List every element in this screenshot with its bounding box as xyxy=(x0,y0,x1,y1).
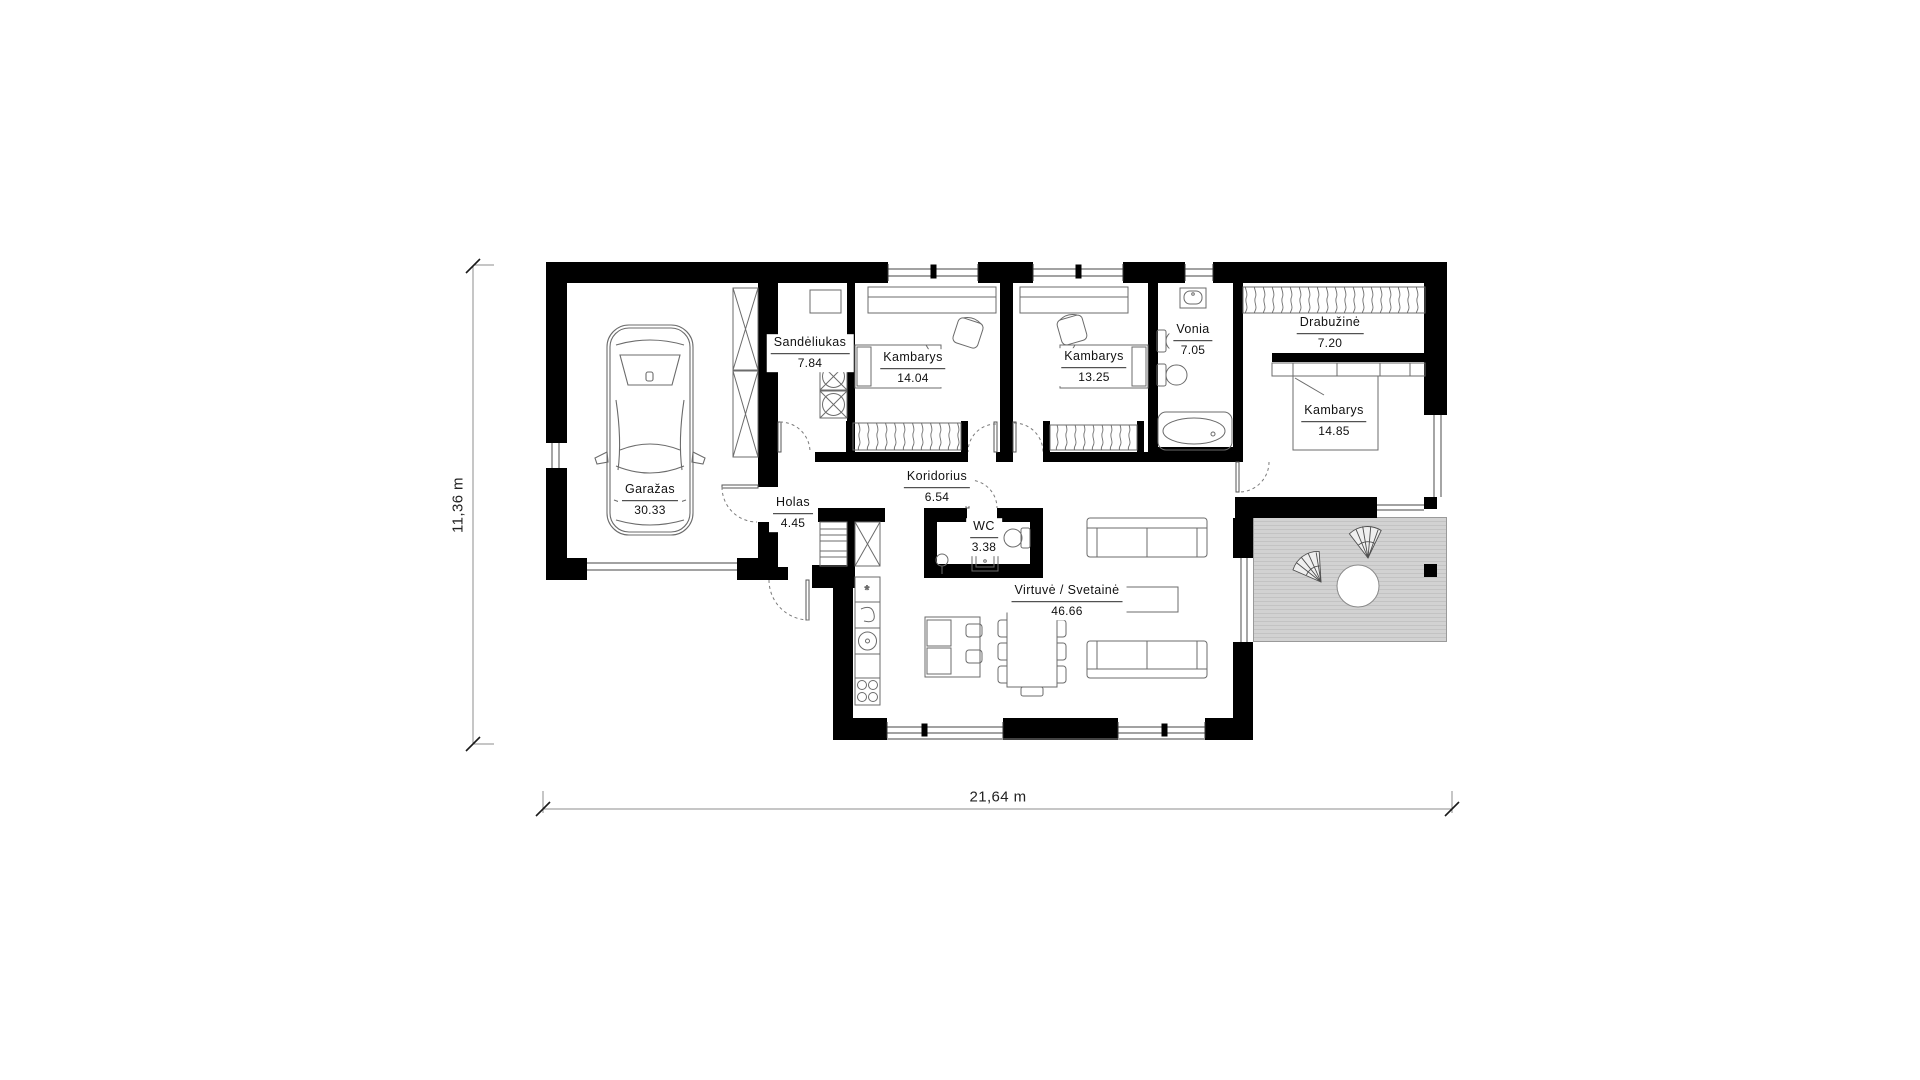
room-label-bedroom2: Kambarys 13.25 xyxy=(1057,348,1130,386)
room-name: Garažas xyxy=(622,482,678,501)
room-name: Kambarys xyxy=(1061,349,1126,368)
room-label-storage: Sandėliukas 7.84 xyxy=(767,334,854,372)
garage-wardrobes xyxy=(733,288,758,457)
room-area: 14.85 xyxy=(1301,422,1366,439)
room-area: 3.38 xyxy=(970,538,998,555)
room-name: Drabužinė xyxy=(1297,315,1364,334)
room-area: 46.66 xyxy=(1012,602,1123,619)
kitchen-sink xyxy=(859,632,877,650)
room-label-kitchen-living: Virtuvė / Svetainė 46.66 xyxy=(1008,582,1127,620)
room-name: Vonia xyxy=(1173,322,1212,341)
terrace-chair xyxy=(1290,547,1335,592)
room-name: Kambarys xyxy=(880,350,945,369)
room-label-garage: Garažas 30.33 xyxy=(618,481,682,519)
bidet-icon xyxy=(1157,364,1187,386)
room-name: Koridorius xyxy=(904,469,970,488)
appliance-mark xyxy=(861,607,874,621)
room-label-wardrobe: Drabužinė 7.20 xyxy=(1293,314,1368,352)
room-label-bedroom1: Kambarys 14.04 xyxy=(876,349,949,387)
room-area: 7.20 xyxy=(1297,334,1364,351)
floor-plan-drawing: * xyxy=(0,0,1920,1080)
bathroom-fixtures xyxy=(1157,288,1232,450)
dimension-width: 21,64 m xyxy=(966,789,1031,806)
room-area: 6.54 xyxy=(904,488,970,505)
room-area: 4.45 xyxy=(773,514,813,531)
room-name: Holas xyxy=(773,495,813,514)
room-label-bedroom3: Kambarys 14.85 xyxy=(1297,402,1370,440)
wc-toilet-icon xyxy=(1004,528,1030,548)
sofa-bottom xyxy=(1087,641,1207,678)
room-label-wc: WC 3.38 xyxy=(966,518,1002,556)
room-name: WC xyxy=(970,519,998,538)
sofa-top xyxy=(1087,518,1207,557)
kitchen-island xyxy=(925,617,982,677)
terrace-furniture xyxy=(1290,525,1384,607)
terrace-chair xyxy=(1349,525,1384,560)
room-name: Sandėliukas xyxy=(771,335,850,354)
room-area: 30.33 xyxy=(622,501,678,518)
room-name: Kambarys xyxy=(1301,403,1366,422)
wardrobe-closet xyxy=(1243,287,1425,313)
room-area: 7.05 xyxy=(1173,341,1212,358)
room-area: 13.25 xyxy=(1061,368,1126,385)
room-label-corridor: Koridorius 6.54 xyxy=(900,468,974,506)
room-area: 14.04 xyxy=(880,369,945,386)
kitchen-counter: * xyxy=(855,577,880,705)
room-label-bathroom: Vonia 7.05 xyxy=(1169,321,1216,359)
floor-plan-page: * xyxy=(0,0,1920,1080)
dimension-height: 11,36 m xyxy=(450,473,467,537)
terrace-table xyxy=(1337,565,1379,607)
bathtub xyxy=(1158,412,1232,450)
room-area: 7.84 xyxy=(771,354,850,371)
room-name: Virtuvė / Svetainė xyxy=(1012,583,1123,602)
worktop-mark: * xyxy=(865,583,870,597)
stove xyxy=(858,681,878,702)
room-label-hall: Holas 4.45 xyxy=(769,494,817,532)
